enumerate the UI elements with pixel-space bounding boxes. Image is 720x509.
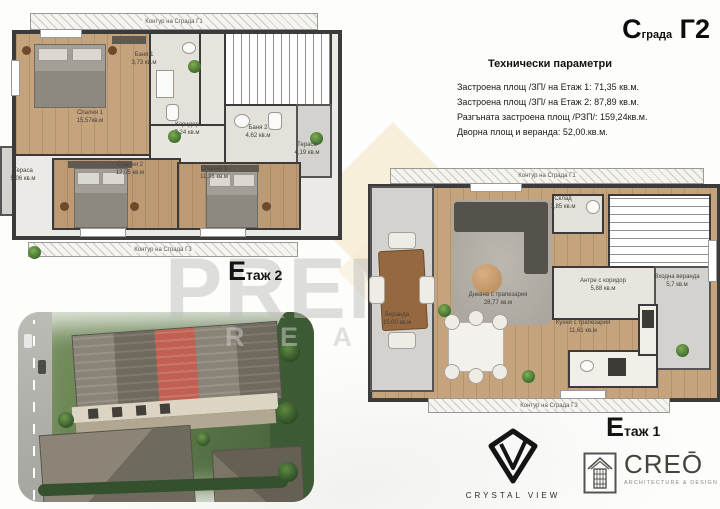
floor1-title-rest: таж 1 [624,423,660,439]
ottoman [472,264,502,294]
sink [580,360,594,372]
room-area: 15,00 кв.м [368,320,426,328]
floor1-plan [368,184,720,402]
page-title: Сграда Г2 [560,14,710,45]
nightstand [108,46,117,55]
room-area: 4,19 кв.м [286,150,328,158]
room-area: 5,06 кв.м [2,176,44,184]
brochure-page: PREM R E A L E S T Контур на Сграда Г1 [0,0,720,509]
floor2-stairs [226,34,330,106]
title-letter: С [622,14,642,44]
floor2-contour-top: Контур на Сграда Г1 [30,13,318,30]
nightstand [130,202,139,211]
room-label: Спалня 2 12,05 кв.м [100,162,160,178]
entry-door [112,407,123,418]
floor1-stairs [610,196,709,270]
bed [34,44,106,108]
room-label: Спалня 1 15,57кв.м [60,110,120,126]
title-suffix: Г2 [672,14,710,44]
fridge [642,310,654,328]
bed-blanket [75,193,127,227]
car [24,334,32,348]
room-name: Веранда [368,312,426,320]
boiler [586,200,600,214]
room-area: 7,24 кв.м [162,130,212,138]
room-area: 12,05 кв.м [100,170,160,178]
floor2-title: Етаж 2 [228,256,282,287]
bed-blanket [207,195,257,227]
room-label: Склад 1,85 кв.м [540,196,586,212]
room-area: 11,61 кв.м [544,328,622,336]
window [708,240,717,282]
crystal-view-label: CRYSTAL VIEW [458,491,568,500]
window [200,228,246,237]
entry-door [136,405,147,416]
room-label: Тераса 4,19 кв.м [286,142,328,158]
creo-wordmark: CREŌ [624,452,718,477]
plant-icon [676,344,689,357]
room-area: 5,7 кв.м [646,282,708,290]
room-name: Дневна с трапезария [452,292,544,300]
sink [182,42,196,54]
tree [276,402,298,424]
crystal-view-diamond-icon [481,428,545,484]
room-area: 3,73 кв.м [122,60,166,68]
floor1-title: Етаж 1 [606,412,660,443]
window [40,29,82,38]
room-label: Антре с коридор 5,88 кв.м [562,278,644,294]
floor2-title-rest: таж 2 [246,267,282,283]
dining-chair [468,368,484,384]
nightstand [60,202,69,211]
plant-icon [438,304,451,317]
room-label: Коридор 7,24 кв.м [162,122,212,138]
floor1-contour-bottom-label: Контур на Сграда Г3 [517,403,581,409]
floor2-contour-top-label: Контур на Сграда Г1 [142,19,206,25]
tech-params-list: Застроена площ /ЗП/ на Етаж 1: 71,35 кв.… [457,80,707,140]
sofa-arm [524,202,548,274]
room-name: Баня 1 [122,52,166,60]
road-markings [33,320,35,500]
room-area: 11,36 кв.м [184,174,244,182]
room-label: Баня 2 4,62 кв.м [234,125,282,141]
floor2-contour-bottom: Контур на Сграда Г3 [28,242,298,257]
outdoor-chair [419,276,435,304]
highlighted-roof-section [154,328,200,407]
roof-section [113,331,159,410]
stove [608,358,626,376]
room-name: Тераса [286,142,328,150]
car [38,360,46,374]
floor2-title-big: Е [228,256,246,286]
room-name: Тераса [2,168,44,176]
nightstand [262,202,271,211]
window [80,228,126,237]
creo-text-block: CREŌ ARCHITECTURE & DESIGN [624,452,718,486]
entry-door [160,403,171,414]
room-name: Баня 2 [234,125,282,133]
room-area: 4,62 кв.м [234,133,282,141]
dining-chair [492,364,508,380]
room-area: 1,85 кв.м [540,204,586,212]
tree [58,412,74,428]
tree [196,432,210,446]
room-area: 15,57кв.м [60,118,120,126]
tech-line: Застроена площ /ЗП/ на Етаж 1: 71,35 кв.… [457,80,707,95]
entry-door [88,408,99,419]
shower [156,70,174,98]
floor1-contour-bottom: Контур на Сграда Г3 [428,398,670,413]
tech-line: Разгъната застроена площ /РЗП/: 159,24кв… [457,110,707,125]
outdoor-chair [388,232,416,249]
room-label: Спалня 3 11,36 кв.м [184,166,244,182]
room-label: Баня 1 3,73 кв.м [122,52,166,68]
title-small: града [642,29,673,41]
creo-logo: CREŌ ARCHITECTURE & DESIGN [583,452,718,494]
plant-icon [188,60,201,73]
room-name: Входна веранда [646,274,708,282]
room-name: Спалня 3 [184,166,244,174]
roof-section [73,333,119,412]
tech-params-heading: Технически параметри [455,58,645,70]
nightstand [22,46,31,55]
tech-line: Дворна площ и веранда: 52,00.кв.м. [457,125,707,140]
bed-pillow [72,48,102,61]
room-area: 28,77 кв.м [452,300,544,308]
dining-chair [492,314,508,330]
creo-building-icon [583,452,617,494]
bed-pillow [77,172,100,185]
window [560,390,606,399]
room-name: Спалня 1 [60,110,120,118]
room-name: Спалня 2 [100,162,160,170]
floor2-contour-bottom-label: Контур на Сграда Г3 [131,247,195,253]
floor1-contour-top: Контур на Сграда Г1 [390,168,704,184]
plant-icon [522,370,535,383]
bed-pillow [38,48,68,61]
window [11,60,20,96]
room-label: Тераса 5,06 кв.м [2,168,44,184]
room-name: Антре с коридор [562,278,644,286]
dining-chair [444,364,460,380]
room-label: Входна веранда 5,7 кв.м [646,274,708,290]
outdoor-chair [388,332,416,349]
outdoor-chair [369,276,385,304]
tree [278,462,298,482]
room-label: Дневна с трапезария 28,77 кв.м [452,292,544,308]
floor1-contour-top-label: Контур на Сграда Г1 [515,173,579,179]
room-name: Склад [540,196,586,204]
room-label: Веранда 15,00 кв.м [368,312,426,328]
room-name: Кухня с трапезария [544,320,622,328]
toilet [166,104,179,121]
room-area: 5,88 кв.м [562,286,644,294]
bed-blanket [35,71,105,107]
floor1-title-big: Е [606,412,624,442]
window [470,183,522,192]
creo-tagline: ARCHITECTURE & DESIGN [624,480,718,486]
room-label: Кухня с трапезария 11,61 кв.м [544,320,622,336]
wardrobe [112,36,146,44]
dining-chair [468,310,484,326]
room-name: Коридор [162,122,212,130]
plant-icon [28,246,41,259]
tech-line: Застроена площ /ЗП/ на Етаж 2: 87,89 кв.… [457,95,707,110]
crystal-view-logo: CRYSTAL VIEW [458,428,568,500]
